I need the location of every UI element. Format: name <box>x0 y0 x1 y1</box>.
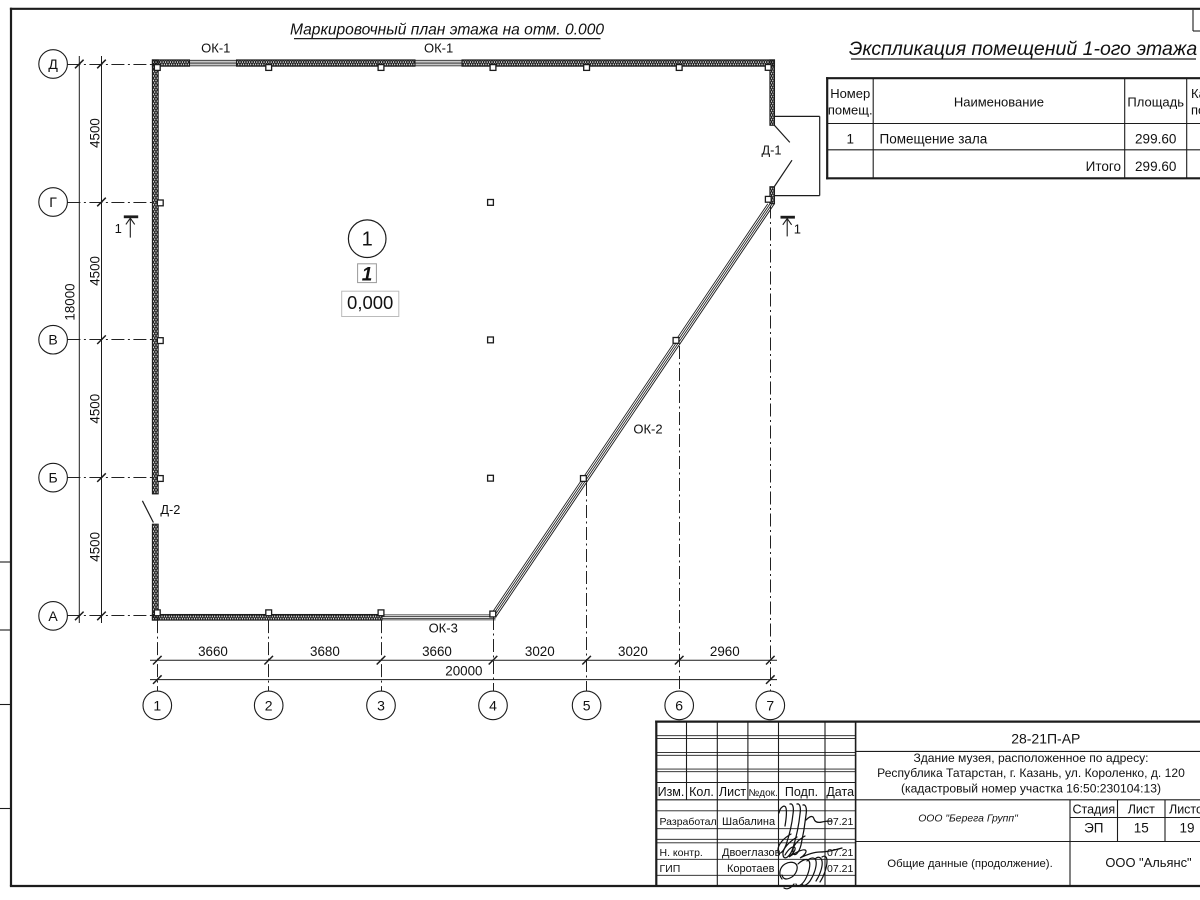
svg-text:помещения: помещения <box>1191 103 1200 118</box>
svg-text:4500: 4500 <box>87 394 102 424</box>
svg-text:(кадастровый номер участка 16:: (кадастровый номер участка 16:50:230104:… <box>901 782 1161 796</box>
svg-text:1: 1 <box>794 221 801 236</box>
svg-text:Экспликация помещений 1-ого эт: Экспликация помещений 1-ого этажа <box>849 38 1198 60</box>
svg-text:ОК-3: ОК-3 <box>429 621 458 636</box>
svg-text:ЭП: ЭП <box>1084 821 1103 836</box>
svg-text:3660: 3660 <box>198 644 228 659</box>
svg-text:Листов: Листов <box>1169 803 1200 817</box>
svg-text:1: 1 <box>153 697 161 713</box>
svg-text:3660: 3660 <box>422 644 452 659</box>
svg-text:помещ.: помещ. <box>828 103 873 118</box>
svg-text:1: 1 <box>362 265 373 286</box>
svg-text:3020: 3020 <box>525 644 555 659</box>
svg-text:ООО "Альянс": ООО "Альянс" <box>1105 855 1192 870</box>
svg-text:20000: 20000 <box>445 663 482 678</box>
svg-text:Б: Б <box>49 470 58 486</box>
svg-text:Площадь: Площадь <box>1127 95 1184 110</box>
svg-text:6: 6 <box>675 697 683 713</box>
svg-text:Номер: Номер <box>830 86 870 101</box>
svg-text:В: В <box>48 332 57 348</box>
svg-text:4500: 4500 <box>87 532 102 562</box>
svg-text:2: 2 <box>265 697 273 713</box>
svg-text:Общие данные (продолжение).: Общие данные (продолжение). <box>887 858 1053 870</box>
svg-text:Д-2: Д-2 <box>160 502 180 517</box>
svg-text:Г: Г <box>49 194 57 210</box>
svg-text:Категория: Категория <box>1191 86 1200 101</box>
svg-text:Здание музея, расположенное по: Здание музея, расположенное по адресу: <box>913 751 1148 765</box>
svg-text:7: 7 <box>766 697 774 713</box>
svg-text:299.60: 299.60 <box>1135 132 1176 147</box>
svg-text:Кол.: Кол. <box>689 785 714 799</box>
svg-text:18000: 18000 <box>62 283 77 320</box>
svg-text:Маркировочный план этажа на от: Маркировочный план этажа на отм. 0.000 <box>290 22 604 39</box>
svg-text:07.21: 07.21 <box>827 816 853 828</box>
svg-text:15: 15 <box>1134 821 1149 836</box>
svg-text:Шабалина: Шабалина <box>722 816 776 828</box>
svg-text:Двоеглазов: Двоеглазов <box>722 847 781 859</box>
svg-text:Н. контр.: Н. контр. <box>660 847 703 859</box>
svg-text:1: 1 <box>846 132 854 147</box>
svg-text:ОК-2: ОК-2 <box>633 422 662 437</box>
svg-text:А: А <box>48 608 58 624</box>
svg-text:3: 3 <box>377 697 385 713</box>
svg-text:1: 1 <box>362 229 373 251</box>
svg-text:Д: Д <box>48 56 58 72</box>
svg-text:Коротаев: Коротаев <box>727 863 775 875</box>
svg-text:ОК-1: ОК-1 <box>424 41 453 56</box>
svg-text:Стадия: Стадия <box>1072 803 1115 817</box>
svg-text:07.21: 07.21 <box>827 863 853 875</box>
svg-text:Лист: Лист <box>1128 803 1155 817</box>
svg-text:0,000: 0,000 <box>347 292 393 313</box>
svg-text:Д-1: Д-1 <box>761 143 781 158</box>
svg-text:Помещение зала: Помещение зала <box>880 132 988 147</box>
svg-text:Наименование: Наименование <box>954 95 1044 110</box>
svg-text:3020: 3020 <box>618 644 648 659</box>
svg-text:Дата: Дата <box>826 785 854 799</box>
svg-text:Республика Татарстан, г. Казан: Республика Татарстан, г. Казань, ул. Кор… <box>877 766 1185 780</box>
svg-text:Итого: Итого <box>1086 159 1121 174</box>
svg-text:Изм.: Изм. <box>658 785 685 799</box>
svg-text:299.60: 299.60 <box>1135 159 1176 174</box>
svg-text:4500: 4500 <box>87 256 102 286</box>
svg-text:3680: 3680 <box>310 644 340 659</box>
svg-text:19: 19 <box>1179 821 1194 836</box>
svg-text:5: 5 <box>583 697 591 713</box>
svg-text:2960: 2960 <box>710 644 740 659</box>
svg-text:4500: 4500 <box>87 118 102 148</box>
svg-text:4: 4 <box>489 697 497 713</box>
svg-text:ОК-1: ОК-1 <box>201 41 230 56</box>
svg-text:№док.: №док. <box>749 788 778 799</box>
svg-text:28-21П-АР: 28-21П-АР <box>1011 731 1080 747</box>
svg-text:Разработал: Разработал <box>660 816 717 828</box>
svg-text:1: 1 <box>115 221 122 236</box>
svg-text:ООО "Берега Групп": ООО "Берега Групп" <box>918 814 1019 825</box>
svg-text:ГИП: ГИП <box>660 863 681 875</box>
svg-text:Подп.: Подп. <box>785 785 818 799</box>
svg-text:Лист: Лист <box>719 785 746 799</box>
